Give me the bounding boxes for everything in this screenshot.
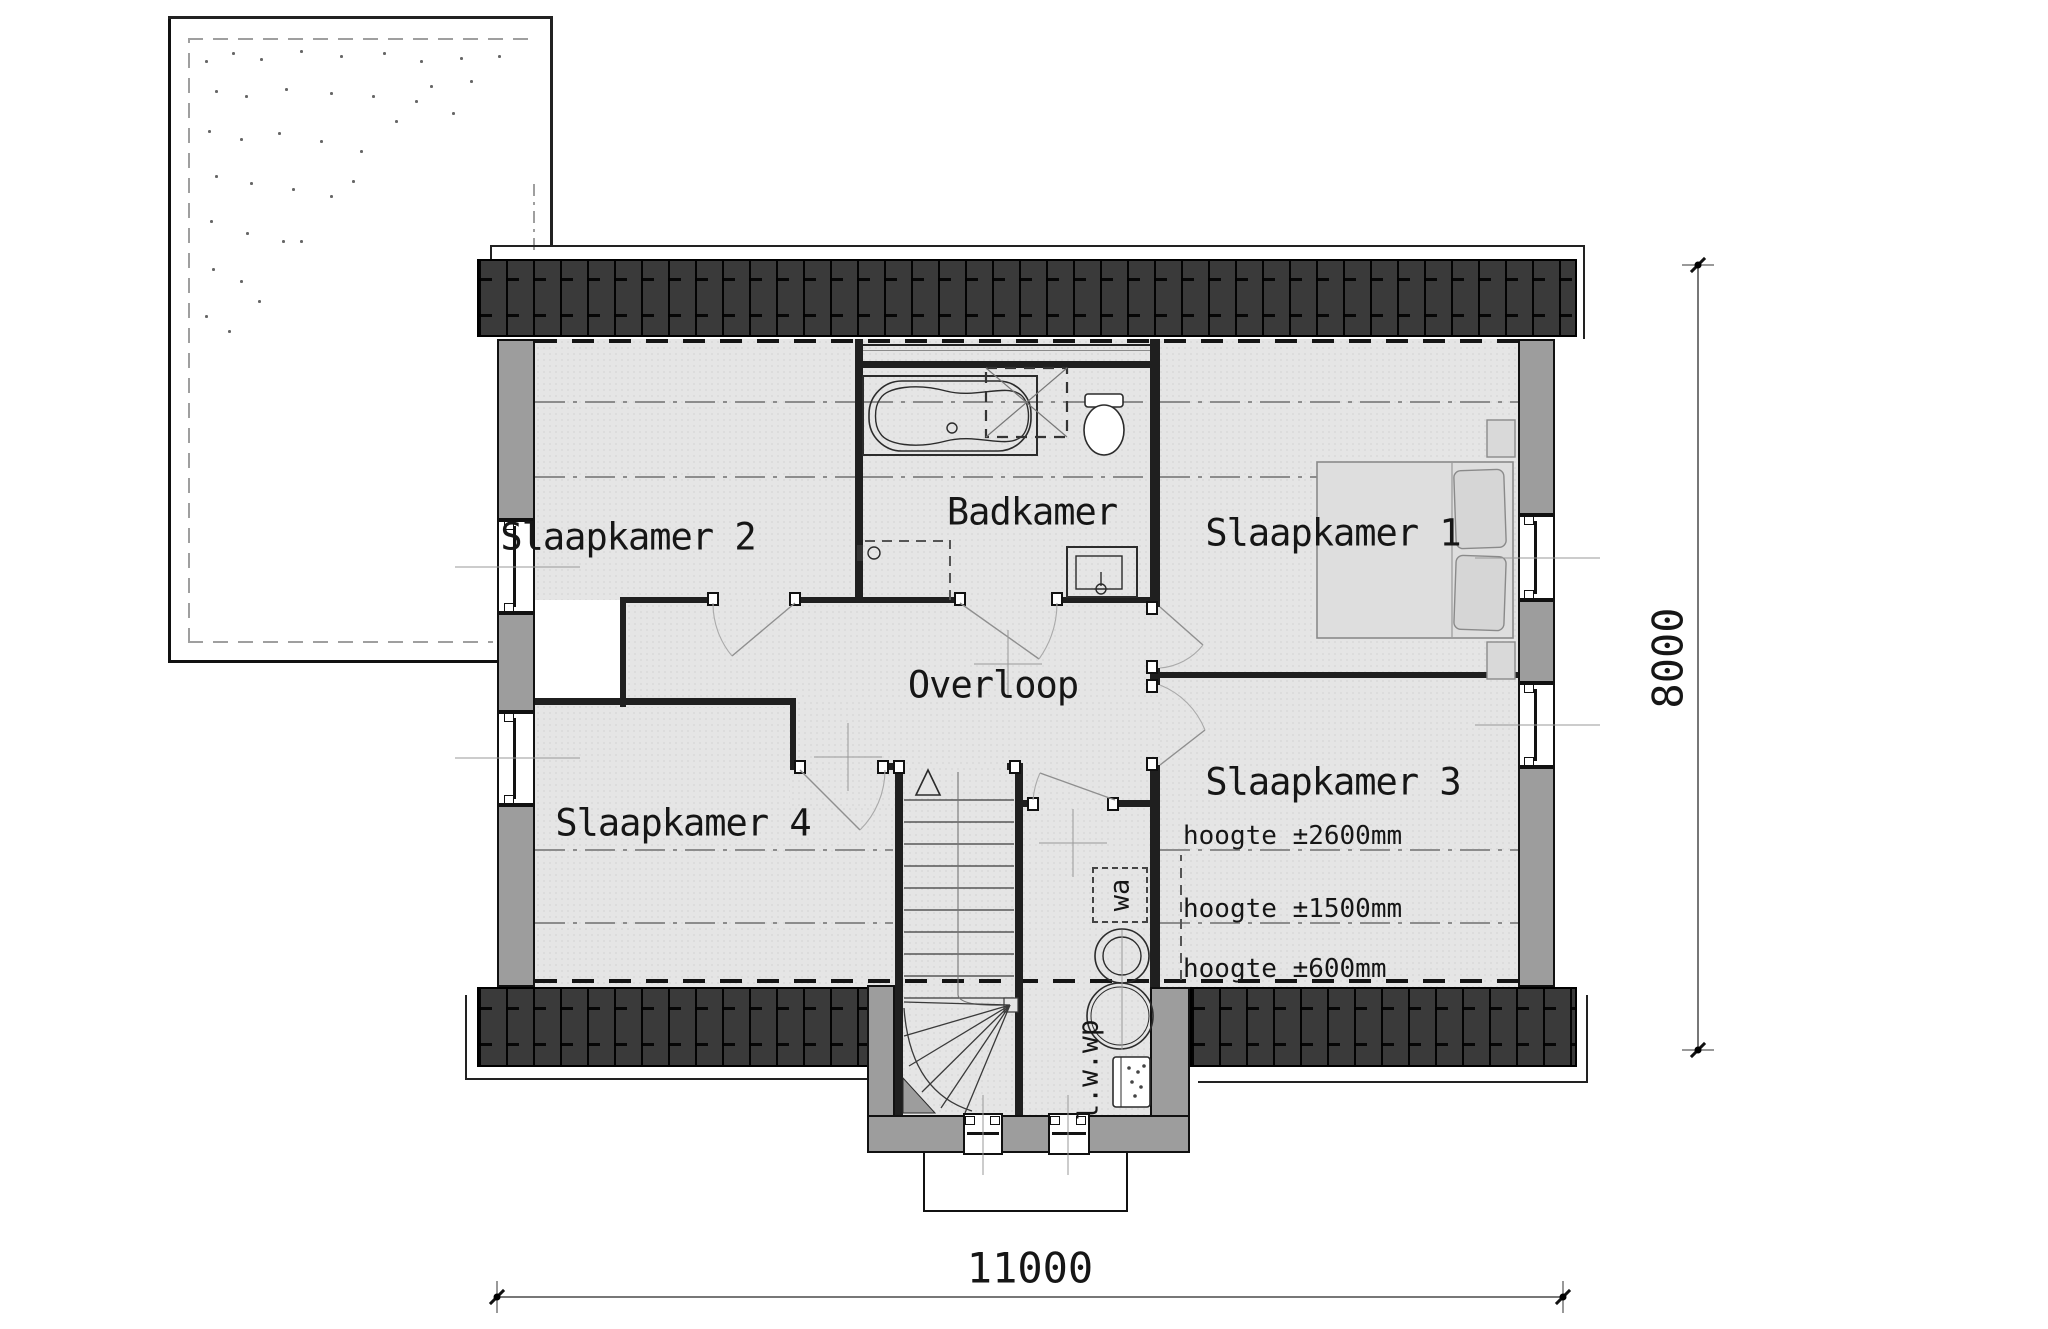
slaapkamer3-zone-dashed	[1180, 855, 1182, 980]
stipple-dot	[470, 80, 473, 83]
dimension-line-vertical	[1697, 265, 1699, 1050]
door-jamb	[707, 592, 719, 606]
wall-overloop-step	[790, 698, 796, 768]
door-jamb	[877, 760, 889, 774]
dim-tick-dot	[1695, 262, 1702, 269]
label-hoogte-1500: hoogte ±1500mm	[1183, 894, 1402, 924]
door-jamb	[1146, 679, 1158, 693]
window-frame-end	[504, 713, 514, 722]
window-mullion	[513, 718, 516, 799]
height-line	[535, 401, 855, 403]
wall-overloop-left	[620, 597, 626, 707]
stipple-dot	[260, 58, 263, 61]
stipple-dot	[215, 90, 218, 93]
height-line	[863, 476, 1150, 478]
stipple-dot	[245, 95, 248, 98]
stipple-dot	[420, 60, 423, 63]
stipple-dot	[395, 120, 398, 123]
floor-badkamer	[855, 339, 1160, 603]
height-line	[1160, 476, 1317, 478]
wall-slaapkamer1-3	[1160, 672, 1518, 678]
dimension-width: 11000	[967, 1244, 1093, 1293]
door-jamb	[1009, 760, 1021, 774]
stipple-dot	[210, 220, 213, 223]
badkamer-zone-dashed	[865, 540, 951, 542]
stipple-dot	[246, 232, 249, 235]
stipple-dot	[215, 175, 218, 178]
room-label-slaapkamer-1: Slaapkamer 1	[1205, 512, 1460, 555]
garage-roof-outline-right	[550, 16, 553, 247]
stipple-dot	[240, 138, 243, 141]
gutter-line-bottom-left	[465, 995, 880, 1080]
door-jamb	[794, 760, 806, 774]
stipple-dot	[205, 60, 208, 63]
label-hoogte-2600: hoogte ±2600mm	[1183, 821, 1402, 851]
wall-spine-right	[1150, 339, 1160, 607]
window-mullion	[1534, 689, 1537, 761]
window-mullion	[967, 1132, 999, 1135]
floor-stairwell	[895, 766, 1023, 1115]
window-frame-end	[504, 795, 514, 804]
dim-tick-dot	[1695, 1047, 1702, 1054]
room-label-badkamer: Badkamer	[947, 491, 1117, 534]
height-line	[863, 401, 1150, 403]
canopy-outline	[923, 1153, 1128, 1212]
wall-right-pier	[1518, 767, 1555, 987]
room-label-slaapkamer-2: Slaapkamer 2	[500, 516, 755, 559]
stipple-dot	[240, 280, 243, 283]
label-heat-pump: l.w.wp	[1072, 1019, 1105, 1120]
floor-overloop-upper	[620, 597, 1160, 707]
height-line-2600	[535, 849, 893, 851]
wall-right-pier	[1518, 600, 1555, 683]
stipple-dot	[372, 95, 375, 98]
dim-tick-dot	[1560, 1294, 1567, 1301]
room-label-slaapkamer-4: Slaapkamer 4	[555, 802, 810, 845]
stipple-dot	[278, 132, 281, 135]
door-jamb	[1146, 660, 1158, 674]
garage-dashed-top	[188, 38, 535, 40]
window-frame-end	[1524, 757, 1534, 766]
garage-roof-outline-top	[168, 16, 553, 19]
door-jamb	[1027, 797, 1039, 811]
wall-left-pier	[497, 339, 535, 520]
wall-overloop-top	[795, 597, 960, 603]
window-frame-end	[965, 1116, 975, 1125]
dimension-depth: 8000	[1644, 607, 1693, 708]
stipple-dot	[300, 50, 303, 53]
stipple-dot	[205, 315, 208, 318]
stipple-dot	[285, 88, 288, 91]
stipple-dot	[258, 300, 261, 303]
door-jamb	[789, 592, 801, 606]
wall-techroom-top	[1115, 800, 1150, 807]
wall-spine-right	[1150, 765, 1160, 987]
stipple-dot	[292, 188, 295, 191]
badkamer-zone-dashed	[949, 540, 951, 600]
window-frame-end	[1524, 590, 1534, 599]
door-jamb	[1107, 797, 1119, 811]
gutter-line-bottom-right	[1198, 995, 1588, 1083]
height-line	[535, 476, 855, 478]
garage-roof-outline	[168, 16, 500, 663]
stipple-dot	[330, 195, 333, 198]
floor-slaapkamer-1	[1158, 339, 1518, 678]
wall-protrusion-bottom	[867, 1115, 1190, 1153]
wall-badkamer-left	[855, 339, 863, 603]
wall-left-pier	[497, 613, 535, 712]
window-mullion	[1534, 521, 1537, 594]
stipple-dot	[498, 55, 501, 58]
window-frame-end	[1524, 684, 1534, 693]
height-line-1500	[535, 922, 893, 924]
height-line	[1160, 401, 1518, 403]
door-jamb	[893, 760, 905, 774]
stipple-dot	[430, 85, 433, 88]
floor-slaapkamer-2	[535, 339, 855, 600]
wall-room2-room4	[535, 698, 796, 705]
stipple-dot	[282, 240, 285, 243]
dimension-line-horizontal	[497, 1296, 1563, 1298]
stipple-dot	[300, 240, 303, 243]
floor-plan: Slaapkamer 2 Badkamer Slaapkamer 1 Overl…	[0, 0, 2048, 1329]
window-frame-end	[1524, 516, 1534, 525]
ridge-line	[855, 344, 1158, 346]
label-washing-machine: wa	[1105, 879, 1136, 912]
stipple-dot	[460, 57, 463, 60]
garage-dashed-bottom	[188, 641, 493, 643]
wall-stair-right	[1015, 766, 1023, 1115]
stipple-dot	[232, 52, 235, 55]
room-label-overloop: Overloop	[908, 664, 1078, 707]
stipple-dot	[250, 182, 253, 185]
wall-badkamer-top	[855, 361, 1158, 368]
roof-overhang-line-right	[1583, 245, 1585, 339]
stipple-dot	[340, 55, 343, 58]
ridge-line-2	[855, 350, 1158, 351]
garage-dashed-left	[188, 38, 190, 643]
stipple-dot	[208, 130, 211, 133]
stipple-dot	[360, 150, 363, 153]
door-jamb	[1146, 601, 1158, 615]
window-left-slaapkamer4	[497, 712, 535, 805]
door-jamb	[1146, 757, 1158, 771]
door-jamb	[1051, 592, 1063, 606]
stipple-dot	[383, 52, 386, 55]
stipple-dot	[330, 92, 333, 95]
stipple-dot	[352, 180, 355, 183]
door-jamb	[954, 592, 966, 606]
stipple-dot	[212, 268, 215, 271]
wall-overloop-top	[620, 597, 713, 603]
window-frame-end	[504, 603, 514, 612]
wall-left-pier	[497, 805, 535, 987]
stipple-dot	[452, 112, 455, 115]
stipple-dot	[320, 140, 323, 143]
window-mullion	[1052, 1132, 1086, 1135]
label-hoogte-600: hoogte ±600mm	[1183, 954, 1387, 984]
dim-tick-dot	[494, 1294, 501, 1301]
room-label-slaapkamer-3: Slaapkamer 3	[1205, 761, 1460, 804]
window-frame-end	[1050, 1116, 1060, 1125]
wall-stair-left	[895, 766, 903, 1115]
knee-wall-dashed-top	[535, 339, 1518, 343]
wall-right-pier	[1518, 339, 1555, 515]
window-frame-end	[990, 1116, 1000, 1125]
roof-band-top	[477, 259, 1577, 337]
wall-overloop-top	[1057, 597, 1152, 603]
roof-overhang-line-top	[490, 245, 1585, 247]
garage-dashed-right	[533, 178, 535, 250]
stipple-dot	[228, 330, 231, 333]
stipple-dot	[415, 100, 418, 103]
